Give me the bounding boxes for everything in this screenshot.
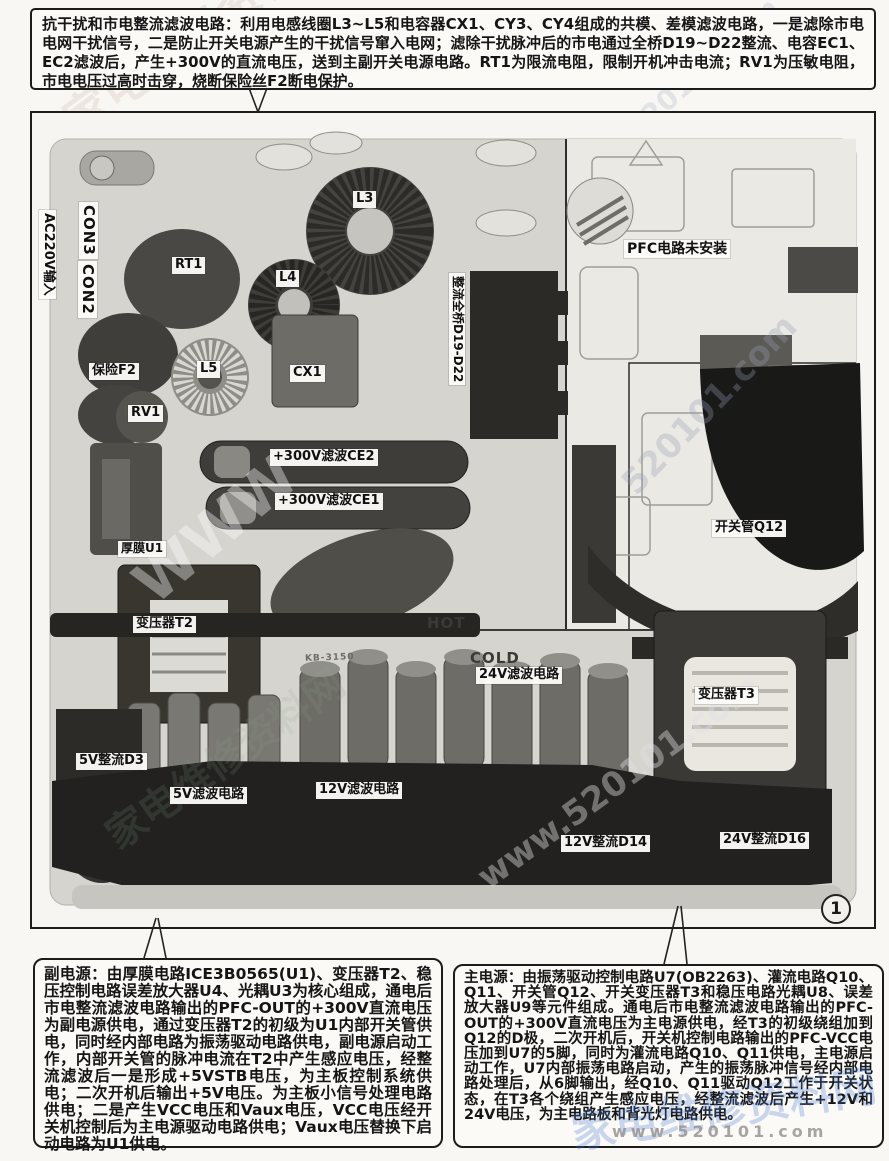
label-fuse-f2: 保险F2	[89, 363, 139, 380]
label-filter-24v: 24V滤波电路	[476, 667, 562, 684]
pcb-photo: WWW 520101.com www.520101.com 家电维修资料网 AC…	[32, 113, 874, 927]
note-aux-power: 副电源：由厚膜电路ICE3B0565(U1)、变压器T2、稳压控制电路误差放大器…	[33, 958, 443, 1148]
label-bridge-d19-d22: 整流全桥D19-D22	[449, 273, 465, 385]
label-rv1: RV1	[128, 405, 163, 422]
label-filter-12v: 12V滤波电路	[316, 782, 402, 799]
label-d14: 12V整流D14	[561, 835, 650, 852]
label-rt1: RT1	[172, 257, 205, 274]
label-l3: L3	[353, 191, 376, 208]
label-t3: 变压器T3	[695, 687, 758, 704]
isolation-slot	[50, 613, 480, 637]
label-t2: 变压器T2	[133, 616, 196, 633]
cx1-capacitor	[272, 315, 358, 407]
figure-number-badge: 1	[821, 894, 851, 924]
label-l4: L4	[276, 270, 299, 287]
board-bottom-edge	[72, 885, 842, 909]
label-cold: COLD	[470, 649, 520, 667]
label-ce2: +300V滤波CE2	[270, 449, 378, 466]
label-d3: 5V整流D3	[76, 753, 147, 770]
label-u1: 厚膜U1	[118, 541, 166, 557]
figure-number: 1	[830, 899, 842, 919]
note-input-filter-circuit: 抗干扰和市电整流滤波电路：利用电感线圈L3~L5和电容器CX1、CY3、CY4组…	[30, 8, 876, 90]
label-d16: 24V整流D16	[720, 832, 809, 849]
label-filter-5v: 5V滤波电路	[170, 787, 247, 804]
label-hot: HOT	[427, 614, 466, 632]
bridge-heatsink	[470, 271, 568, 439]
pfc-dark-slab	[788, 247, 858, 293]
silkscreen-text: KB-3150	[305, 652, 355, 664]
label-pfc-not-installed: PFC电路未安装	[624, 240, 730, 258]
note-main-power: 主电源：由振荡驱动控制电路U7(OB2263)、灌流电路Q10、Q11、开关管Q…	[453, 964, 884, 1148]
scanned-manual-page: 家电维修资料网 www.520101.com 抗干扰和市电整流滤波电路：利用电感…	[0, 0, 889, 1161]
label-ce1: +300V滤波CE1	[275, 493, 383, 510]
label-ac-input: AC220V输入	[39, 210, 56, 299]
label-cx1: CX1	[290, 365, 325, 382]
label-q12: 开关管Q12	[712, 520, 786, 537]
label-con3: CON3	[79, 202, 98, 259]
rt1-component	[124, 229, 240, 329]
label-con2: CON2	[78, 261, 97, 318]
label-l5: L5	[197, 361, 220, 378]
pcb-photo-frame: WWW 520101.com www.520101.com 家电维修资料网 AC…	[30, 111, 876, 929]
leader-top-note	[249, 88, 267, 112]
t3-transformer	[632, 611, 848, 807]
